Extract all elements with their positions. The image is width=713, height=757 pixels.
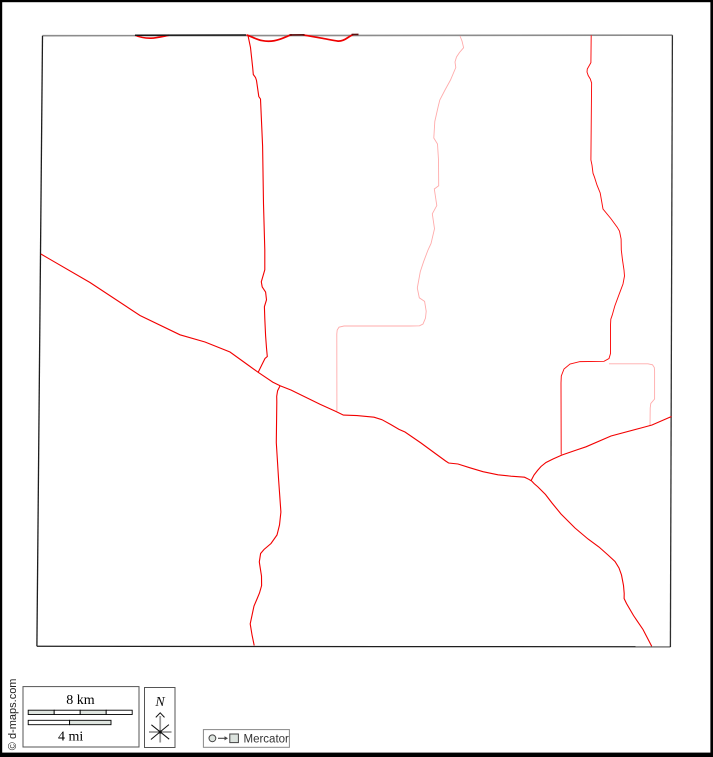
svg-text:4 mi: 4 mi bbox=[58, 730, 83, 745]
svg-text:8 km: 8 km bbox=[66, 693, 95, 708]
svg-text:N: N bbox=[154, 695, 165, 710]
svg-text:© d-maps.com: © d-maps.com bbox=[7, 679, 19, 751]
svg-text:Mercator: Mercator bbox=[244, 734, 290, 746]
